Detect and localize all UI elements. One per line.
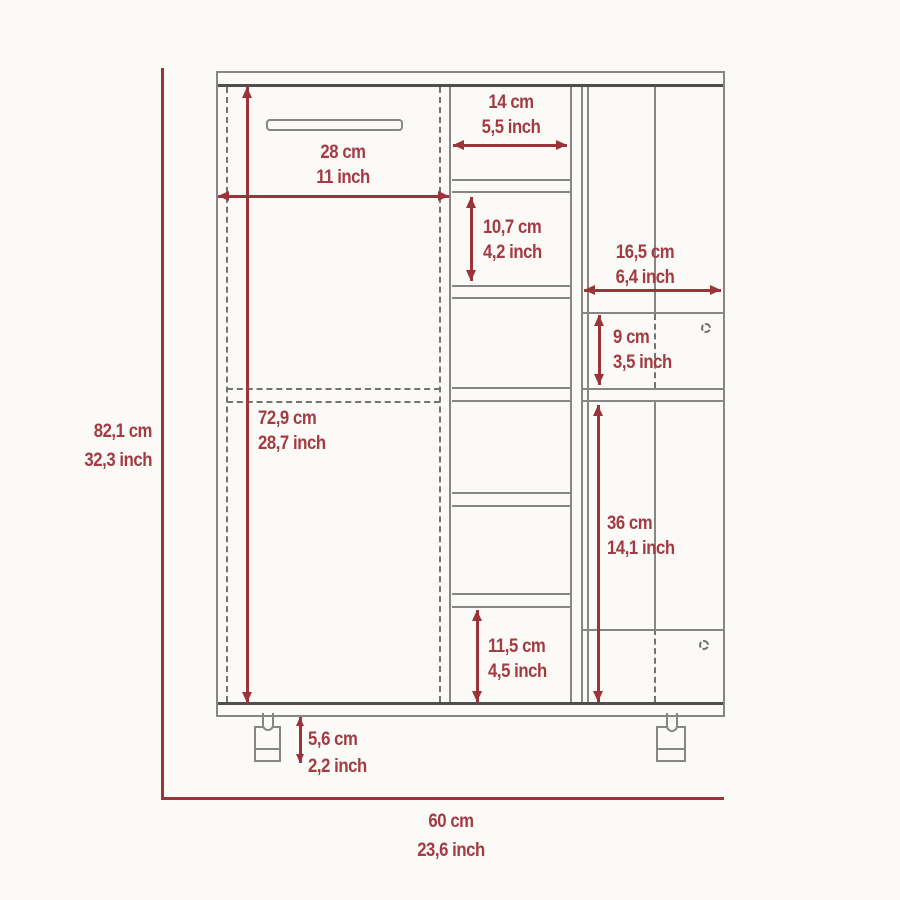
right-section-left-wall-inner (587, 87, 589, 702)
dim-label-upper-right-door-height: 9 cm 3,5 inch (613, 325, 672, 375)
left-door-hidden-edge-right (439, 87, 441, 702)
dim-label-overall-width: 60 cm 23,6 inch (401, 807, 501, 865)
right-leg-wheel-line (658, 748, 684, 750)
dim-label-overall-height: 82,1 cm 32,3 inch (50, 417, 152, 475)
dim-label-left-door-width: 28 cm 11 inch (290, 140, 396, 190)
center-shelf-line (452, 179, 571, 181)
right-shelf-line (581, 400, 723, 402)
center-shelf-line (452, 191, 571, 193)
arrow-leg-height (299, 717, 302, 763)
arrow-lower-right-section-height (597, 405, 600, 702)
right-section-left-wall (581, 87, 583, 702)
dim-label-interior-height: 72,9 cm 28,7 inch (258, 406, 326, 456)
center-shelf-line (452, 387, 571, 389)
dim-label-center-shelf-width: 14 cm 5,5 inch (461, 90, 561, 140)
arrow-bottom-center-shelf-height (476, 610, 479, 702)
center-shelf-line (452, 505, 571, 507)
left-door-hidden-shelf-bottom (227, 401, 440, 403)
arrow-center-shelf-height (470, 197, 473, 281)
center-shelf-line (452, 606, 571, 608)
left-door-hidden-shelf-top (227, 388, 440, 390)
center-shelf-line (452, 593, 571, 595)
center-shelf-line (452, 492, 571, 494)
left-door-hidden-edge-left (226, 87, 228, 702)
partition-door-center (449, 87, 451, 702)
center-shelf-line (452, 297, 571, 299)
arrow-center-shelf-width (453, 144, 567, 147)
dim-label-leg-height: 5,6 cm 2,2 inch (308, 726, 367, 780)
arrow-interior-height (246, 87, 249, 703)
left-leg-wheel-line (256, 748, 279, 750)
dim-label-bottom-center-shelf-height: 11,5 cm 4,5 inch (488, 634, 547, 684)
door-handle (266, 119, 403, 131)
furniture-dimension-diagram: 28 cm 11 inch 14 cm 5,5 inch 10,7 cm 4,2… (0, 0, 900, 900)
dim-label-center-shelf-height: 10,7 cm 4,2 inch (483, 215, 542, 265)
lower-right-door-top-line (581, 629, 723, 631)
lower-door-knob-icon (699, 640, 709, 650)
overall-height-dimension-line (161, 68, 164, 800)
center-shelf-line (452, 285, 571, 287)
dim-label-lower-right-section-height: 36 cm 14,1 inch (607, 511, 675, 561)
upper-door-knob-icon (701, 323, 711, 333)
right-divider-behind-lower-door (654, 629, 656, 702)
arrow-upper-right-door-height (598, 315, 601, 385)
overall-width-dimension-line (161, 797, 724, 800)
cabinet-bottom-panel-line (218, 702, 723, 705)
upper-right-door-top-line (581, 312, 723, 314)
left-leg (254, 726, 281, 762)
center-shelf-line (452, 400, 571, 402)
cabinet-top-panel-line (218, 84, 723, 87)
arrow-left-door-width (218, 195, 449, 198)
dim-label-right-section-width: 16,5 cm 6,4 inch (593, 240, 697, 290)
right-shelf-line (581, 388, 723, 390)
